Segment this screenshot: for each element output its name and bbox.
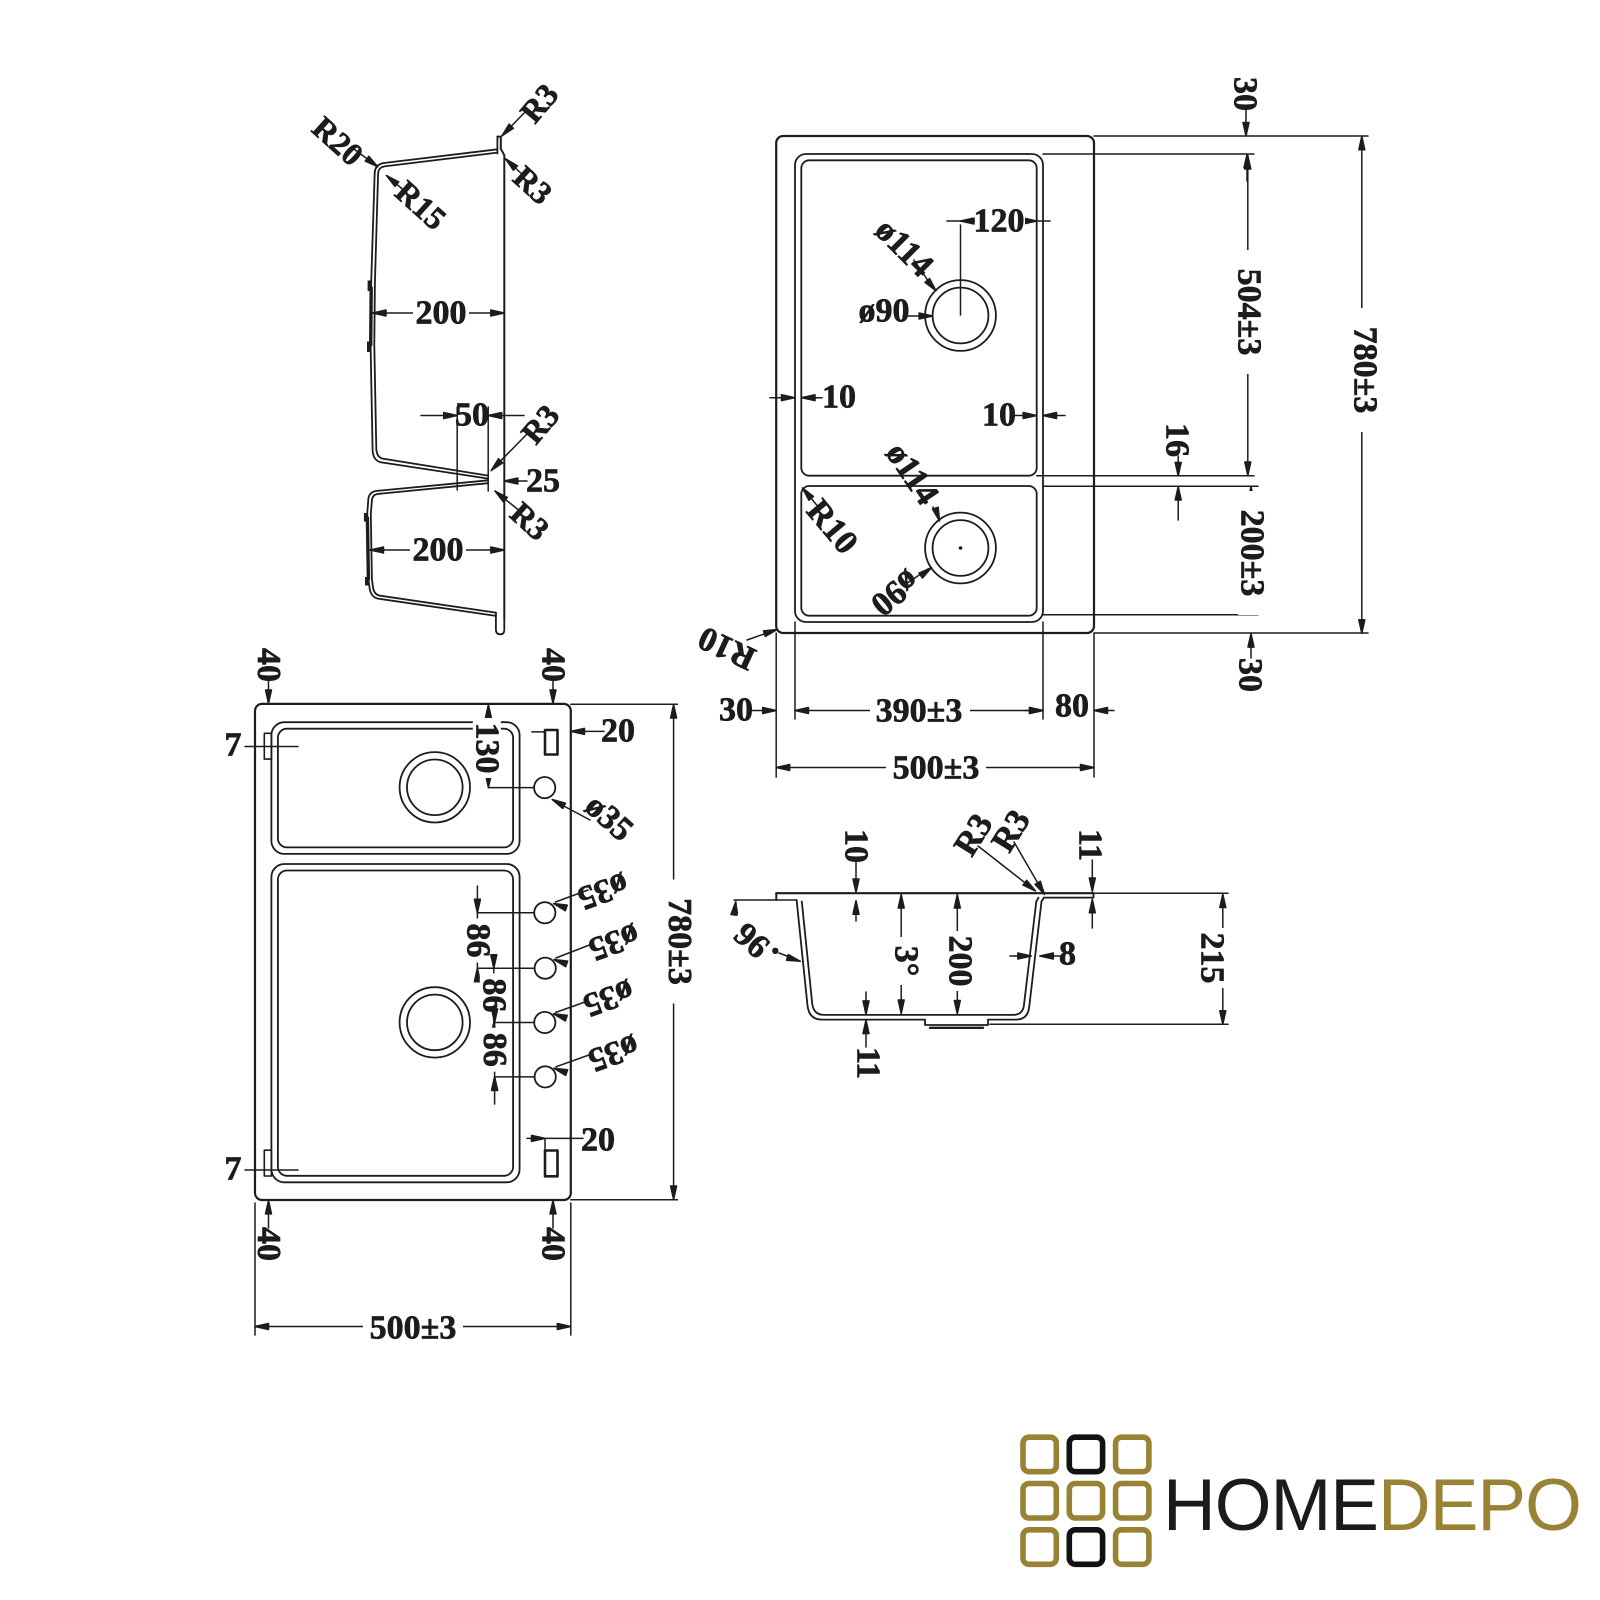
svg-text:20: 20 [581, 1122, 615, 1159]
svg-text:86: 86 [476, 1033, 513, 1067]
svg-text:3°: 3° [888, 946, 925, 977]
svg-text:215: 215 [1194, 933, 1231, 984]
svg-text:40: 40 [250, 648, 287, 682]
svg-text:ø90: ø90 [859, 293, 910, 330]
svg-text:780±3: 780±3 [661, 898, 698, 985]
svg-text:7: 7 [225, 1151, 242, 1188]
svg-text:7: 7 [225, 727, 242, 764]
svg-text:200: 200 [413, 532, 464, 569]
svg-text:40: 40 [535, 1227, 572, 1261]
svg-text:200: 200 [416, 295, 467, 332]
svg-text:HOMEDEPO: HOMEDEPO [1163, 1465, 1581, 1546]
svg-text:500±3: 500±3 [370, 1310, 457, 1347]
svg-text:504±3: 504±3 [1231, 269, 1268, 356]
svg-text:16: 16 [1159, 423, 1196, 457]
svg-text:30: 30 [719, 692, 753, 729]
svg-text:130: 130 [468, 723, 505, 774]
svg-text:10: 10 [838, 829, 875, 863]
svg-text:30: 30 [1232, 658, 1269, 692]
svg-text:40: 40 [535, 648, 572, 682]
svg-text:10: 10 [982, 397, 1016, 434]
svg-text:8: 8 [1059, 936, 1076, 973]
svg-text:86: 86 [475, 978, 512, 1012]
svg-text:10: 10 [822, 379, 856, 416]
svg-text:120: 120 [974, 203, 1025, 240]
svg-text:11: 11 [1072, 829, 1109, 861]
svg-text:200: 200 [941, 936, 978, 987]
svg-text:25: 25 [526, 463, 560, 500]
svg-text:500±3: 500±3 [893, 750, 980, 787]
svg-text:20: 20 [601, 713, 635, 750]
svg-text:80: 80 [1055, 688, 1089, 725]
svg-text:30: 30 [1227, 77, 1264, 111]
svg-text:780±3: 780±3 [1347, 327, 1384, 414]
svg-text:11: 11 [850, 1047, 887, 1079]
svg-text:86: 86 [459, 924, 496, 958]
svg-text:390±3: 390±3 [876, 693, 963, 730]
svg-text:200±3: 200±3 [1234, 510, 1271, 597]
svg-text:50: 50 [455, 397, 489, 434]
